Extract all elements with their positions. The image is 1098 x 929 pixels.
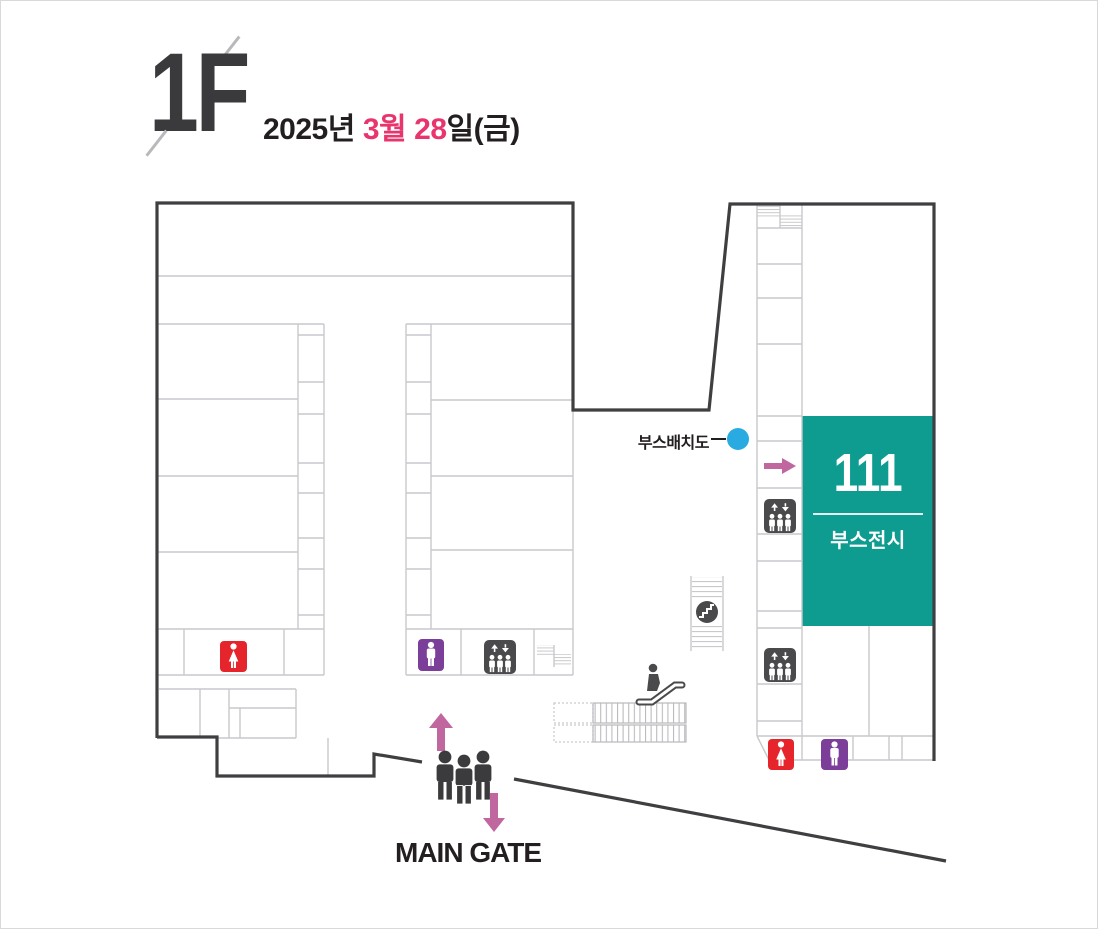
booth-111: 111 부스전시 bbox=[802, 416, 934, 626]
stairs-main-gate bbox=[554, 703, 686, 742]
date-year: 2025년 bbox=[263, 113, 355, 146]
main-gate-label: MAIN GATE bbox=[395, 837, 541, 869]
label-connector-line bbox=[711, 438, 726, 440]
elevator-icon bbox=[484, 640, 516, 674]
floorplan-page: 1F 2025년3월28일(금) 111 부스전시 bbox=[0, 0, 1098, 929]
date-day-suffix: 일(금) bbox=[447, 113, 520, 146]
people-icon bbox=[433, 749, 495, 805]
stairs-circle-icon bbox=[696, 601, 718, 623]
escalator-icon bbox=[639, 664, 682, 702]
arrow-down-icon bbox=[483, 818, 505, 832]
location-dot-icon bbox=[727, 428, 749, 450]
booth-label: 부스전시 bbox=[830, 524, 906, 553]
restroom-women-icon bbox=[768, 739, 794, 770]
arrow-right-icon bbox=[782, 458, 796, 474]
stairs-vertical bbox=[692, 577, 722, 650]
stairs-top-right bbox=[757, 205, 802, 228]
booth-divider bbox=[813, 513, 923, 515]
booth-layout-label: 부스배치도 bbox=[599, 429, 709, 453]
date-month: 3월 bbox=[363, 113, 406, 146]
restroom-women-icon bbox=[220, 641, 247, 672]
restroom-men-icon bbox=[821, 739, 848, 770]
stairs-mini-icon bbox=[537, 645, 571, 666]
restroom-men-icon bbox=[418, 639, 444, 671]
booth-number: 111 bbox=[833, 446, 902, 500]
elevator-icon bbox=[764, 648, 796, 682]
date-day: 28 bbox=[414, 113, 446, 146]
elevator-icon bbox=[764, 499, 796, 533]
arrow-up-icon bbox=[429, 713, 453, 728]
date-text: 2025년3월28일(금) bbox=[263, 104, 520, 148]
